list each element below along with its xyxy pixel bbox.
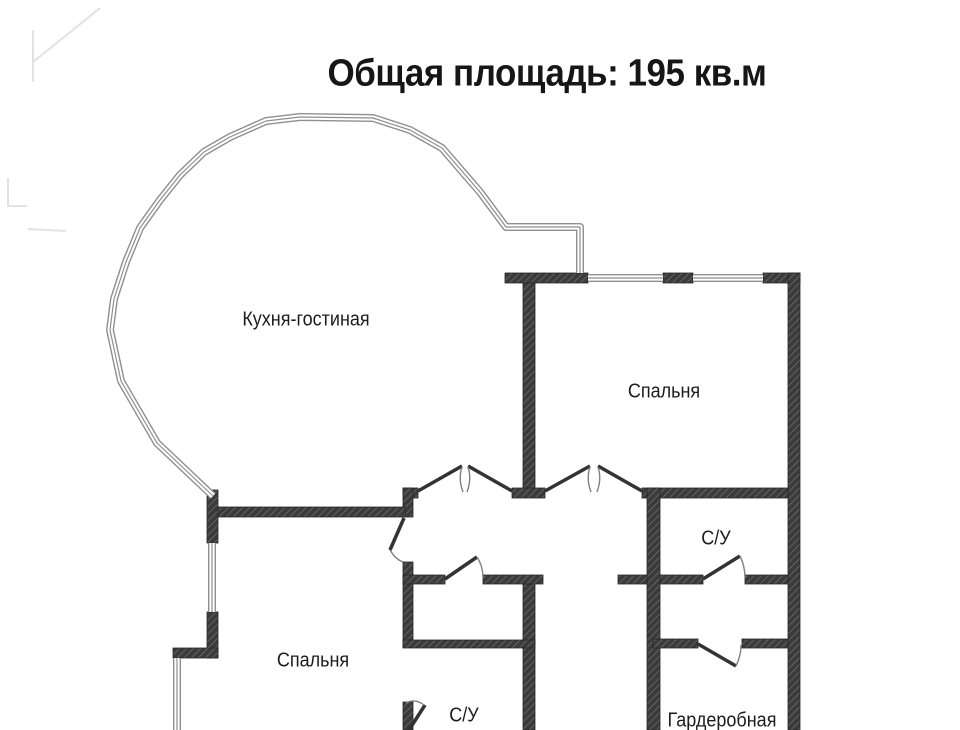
floor-plan: Общая площадь: 195 кв.м Кухня-гостиная С…	[0, 0, 960, 730]
door-wardrobe	[698, 644, 741, 666]
bay-window	[110, 117, 580, 496]
door-bathroom-right	[703, 556, 745, 579]
page-title: Общая площадь: 195 кв.м	[328, 53, 767, 96]
wall-low-3	[742, 639, 788, 648]
wall-top-2	[663, 273, 693, 283]
wall-low-1	[403, 640, 535, 648]
ghost-lines	[8, 8, 100, 231]
wall-mid-2	[483, 575, 543, 584]
floor-plan-drawing	[0, 0, 960, 730]
wall-right	[788, 273, 800, 730]
wall-mid-1	[403, 575, 445, 584]
door-storage-left	[445, 557, 483, 579]
doors	[390, 466, 745, 730]
wall-mid-4	[653, 575, 703, 584]
wall-hall-top-3	[642, 488, 788, 498]
wall-corr-right	[647, 488, 660, 730]
wall-bl-left-1	[207, 490, 218, 543]
wall-top-1	[505, 273, 588, 283]
door-bedroom-tr-double	[545, 466, 642, 492]
wall-mid-5	[745, 575, 788, 584]
room-label-bathroom-bottom: С/У	[449, 705, 478, 728]
door-kitchen-double	[418, 466, 512, 492]
wall-low-2	[653, 639, 698, 648]
room-label-kitchen-living: Кухня-гостиная	[242, 309, 369, 332]
wall-kitchen-south	[210, 507, 405, 517]
room-label-wardrobe: Гардеробная	[668, 710, 777, 730]
door-bedroom-bl-entrance	[390, 518, 404, 562]
wall-bl-step	[173, 648, 218, 658]
room-label-bathroom-right: С/У	[701, 528, 730, 551]
walls	[173, 273, 800, 730]
wall-hall-top-2	[512, 488, 545, 498]
room-label-bedroom-bottom-left: Спальня	[277, 650, 349, 673]
wall-divider-kitchen-bedroom	[523, 283, 535, 490]
wall-center-lower	[523, 583, 535, 730]
room-label-bedroom-top-right: Спальня	[628, 381, 700, 404]
